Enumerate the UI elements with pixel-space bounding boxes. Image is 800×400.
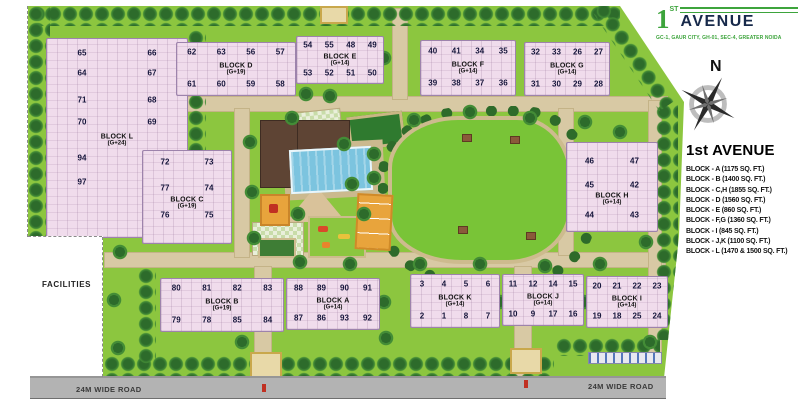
compass-star-icon bbox=[678, 74, 738, 134]
unit-number: 4 bbox=[442, 280, 446, 289]
unit-number: 82 bbox=[233, 284, 242, 293]
legend-item: BLOCK - D (1560 SQ. FT.) bbox=[686, 196, 798, 206]
block-label: BLOCK H(G+14) bbox=[595, 193, 628, 206]
unit-number: 16 bbox=[569, 310, 578, 319]
unit-number: 17 bbox=[549, 310, 558, 319]
unit-number: 8 bbox=[464, 311, 468, 320]
block-label-floors: (G+19) bbox=[219, 70, 252, 76]
unit-number: 27 bbox=[594, 48, 603, 57]
block-c: 727377747675BLOCK C(G+19) bbox=[142, 150, 232, 244]
block-k: 34562187BLOCK K(G+14) bbox=[410, 274, 500, 328]
unit-number: 69 bbox=[148, 118, 157, 127]
legend-title: 1st AVENUE bbox=[686, 142, 798, 159]
unit-number: 39 bbox=[428, 79, 437, 88]
unit-number: 47 bbox=[630, 156, 639, 165]
unit-number: 73 bbox=[205, 158, 214, 167]
boundary-dashed-line bbox=[28, 236, 102, 237]
block-label-name: BLOCK J bbox=[527, 294, 559, 301]
unit-number: 32 bbox=[531, 48, 540, 57]
unit-number: 78 bbox=[202, 315, 211, 324]
unit-number: 20 bbox=[593, 282, 602, 291]
unit-number: 72 bbox=[161, 158, 170, 167]
unit-number: 58 bbox=[276, 79, 285, 88]
unit-number: 34 bbox=[475, 46, 484, 55]
unit-number: 10 bbox=[509, 310, 518, 319]
unit-number: 36 bbox=[499, 79, 508, 88]
unit-number: 51 bbox=[346, 68, 355, 77]
entry-marker-icon bbox=[262, 384, 266, 392]
unit-number: 90 bbox=[340, 284, 349, 293]
block-label: BLOCK D(G+19) bbox=[219, 63, 252, 76]
unit-number: 38 bbox=[452, 79, 461, 88]
unit-number: 12 bbox=[529, 280, 538, 289]
unit-number: 66 bbox=[148, 48, 157, 57]
block-label-name: BLOCK A bbox=[316, 298, 349, 305]
block-label: BLOCK B(G+19) bbox=[205, 299, 238, 312]
unit-number: 35 bbox=[499, 46, 508, 55]
unit-number: 53 bbox=[303, 68, 312, 77]
unit-number: 29 bbox=[573, 79, 582, 88]
block-label-name: BLOCK I bbox=[612, 296, 642, 303]
block-label-floors: (G+14) bbox=[452, 69, 485, 75]
unit-number: 76 bbox=[161, 211, 170, 220]
compass: N bbox=[678, 58, 748, 140]
unit-number: 37 bbox=[475, 79, 484, 88]
unit-number: 50 bbox=[368, 68, 377, 77]
block-label-floors: (G+19) bbox=[205, 306, 238, 312]
unit-number: 84 bbox=[263, 315, 272, 324]
unit-number: 25 bbox=[633, 312, 642, 321]
block-j: 111214151091716BLOCK J(G+14) bbox=[502, 274, 584, 326]
legend-item: BLOCK - L (1470 & 1500 SQ. FT.) bbox=[686, 247, 798, 257]
unit-number: 43 bbox=[630, 211, 639, 220]
block-label-floors: (G+14) bbox=[316, 305, 349, 311]
unit-number: 19 bbox=[593, 312, 602, 321]
legend-item: BLOCK - F,G (1360 SQ. FT.) bbox=[686, 216, 798, 226]
unit-number: 33 bbox=[552, 48, 561, 57]
unit-number: 52 bbox=[325, 68, 334, 77]
unit-number: 64 bbox=[78, 68, 87, 77]
block-a: 8889909187869392BLOCK A(G+14) bbox=[286, 278, 380, 330]
unit-number: 5 bbox=[464, 280, 468, 289]
block-label: BLOCK J(G+14) bbox=[527, 294, 559, 307]
legend-item: BLOCK - J,K (1100 SQ. FT.) bbox=[686, 237, 798, 247]
block-label: BLOCK E(G+14) bbox=[324, 54, 357, 67]
logo-brand-text: AVENUE bbox=[680, 14, 798, 30]
unit-number: 44 bbox=[585, 211, 594, 220]
block-label: BLOCK K(G+14) bbox=[438, 295, 471, 308]
logo-superscript: ST bbox=[670, 6, 679, 13]
unit-number: 2 bbox=[420, 311, 424, 320]
unit-number: 89 bbox=[317, 284, 326, 293]
block-label: BLOCK I(G+14) bbox=[612, 296, 642, 309]
unit-number: 42 bbox=[630, 181, 639, 190]
logo-wordmark: AVENUE bbox=[680, 6, 798, 30]
legend-panel: 1st AVENUE BLOCK - A (1175 SQ. FT.)BLOCK… bbox=[686, 142, 798, 258]
unit-number: 40 bbox=[428, 46, 437, 55]
unit-number: 31 bbox=[531, 79, 540, 88]
block-label-floors: (G+24) bbox=[101, 140, 134, 146]
block-label: BLOCK A(G+14) bbox=[316, 298, 349, 311]
boundary-dashed-line bbox=[27, 6, 28, 237]
unit-number: 63 bbox=[217, 48, 226, 57]
block-label-floors: (G+14) bbox=[595, 200, 628, 206]
unit-number: 83 bbox=[263, 284, 272, 293]
unit-number: 65 bbox=[78, 48, 87, 57]
unit-number: 18 bbox=[613, 312, 622, 321]
road-label-right: 24M WIDE ROAD bbox=[588, 382, 654, 391]
unit-number: 86 bbox=[317, 314, 326, 323]
unit-number: 92 bbox=[363, 314, 372, 323]
legend-list: BLOCK - A (1175 SQ. FT.)BLOCK - B (1400 … bbox=[686, 165, 798, 258]
unit-number: 3 bbox=[420, 280, 424, 289]
unit-number: 68 bbox=[148, 96, 157, 105]
entry-marker-icon bbox=[524, 380, 528, 388]
unit-number: 49 bbox=[368, 41, 377, 50]
boundary-dashed-line bbox=[102, 237, 103, 377]
unit-number: 7 bbox=[486, 311, 490, 320]
block-label-floors: (G+14) bbox=[550, 70, 584, 76]
unit-number: 26 bbox=[573, 48, 582, 57]
unit-number: 87 bbox=[294, 314, 303, 323]
unit-number: 11 bbox=[509, 280, 517, 289]
unit-number: 45 bbox=[585, 181, 594, 190]
unit-number: 97 bbox=[78, 177, 87, 186]
unit-number: 88 bbox=[294, 284, 303, 293]
unit-number: 85 bbox=[233, 315, 242, 324]
unit-number: 59 bbox=[246, 79, 255, 88]
block-label-floors: (G+14) bbox=[438, 302, 471, 308]
unit-number: 81 bbox=[202, 284, 211, 293]
logo-subtitle: GC-1, GAUR CITY, GH-01, SEC-4, GREATER N… bbox=[656, 35, 798, 41]
unit-number: 22 bbox=[633, 282, 642, 291]
legend-item: BLOCK - A (1175 SQ. FT.) bbox=[686, 165, 798, 175]
facilities-label: FACILITIES bbox=[42, 280, 91, 289]
block-label-name: BLOCK B bbox=[205, 299, 238, 306]
unit-number: 15 bbox=[569, 280, 578, 289]
legend-item: BLOCK - C,H (1855 SQ. FT.) bbox=[686, 186, 798, 196]
road-label-left: 24M WIDE ROAD bbox=[76, 385, 142, 394]
unit-number: 71 bbox=[78, 96, 87, 105]
block-f: 4041343539383736BLOCK F(G+14) bbox=[420, 40, 516, 96]
block-d: 6263565761605958BLOCK D(G+19) bbox=[176, 42, 296, 96]
block-label-name: BLOCK D bbox=[219, 63, 252, 70]
unit-number: 57 bbox=[276, 48, 285, 57]
block-b: 8081828379788584BLOCK B(G+19) bbox=[160, 278, 284, 332]
unit-number: 67 bbox=[148, 68, 157, 77]
block-label-name: BLOCK G bbox=[550, 63, 584, 70]
unit-number: 46 bbox=[585, 156, 594, 165]
block-g: 3233262731302928BLOCK G(G+14) bbox=[524, 42, 610, 96]
block-label-name: BLOCK L bbox=[101, 133, 134, 140]
block-label: BLOCK L(G+24) bbox=[101, 133, 134, 146]
unit-number: 9 bbox=[531, 310, 535, 319]
unit-number: 1 bbox=[442, 311, 446, 320]
unit-number: 93 bbox=[340, 314, 349, 323]
unit-number: 41 bbox=[452, 46, 461, 55]
unit-number: 6 bbox=[486, 280, 490, 289]
unit-number: 91 bbox=[363, 284, 372, 293]
unit-number: 54 bbox=[303, 41, 312, 50]
unit-number: 94 bbox=[78, 153, 87, 162]
block-label: BLOCK C(G+19) bbox=[170, 196, 203, 209]
unit-number: 60 bbox=[217, 79, 226, 88]
block-label-name: BLOCK E bbox=[324, 54, 357, 61]
project-logo: 1ST AVENUE GC-1, GAUR CITY, GH-01, SEC-4… bbox=[656, 6, 798, 41]
legend-item: BLOCK - B (1400 SQ. FT.) bbox=[686, 175, 798, 185]
block-label-name: BLOCK K bbox=[438, 295, 471, 302]
unit-number: 74 bbox=[205, 183, 214, 192]
logo-one: 1 bbox=[656, 4, 670, 34]
logo-numeral: 1ST bbox=[656, 6, 678, 33]
unit-number: 61 bbox=[187, 79, 196, 88]
unit-number: 23 bbox=[653, 282, 662, 291]
unit-number: 56 bbox=[246, 48, 255, 57]
block-label-name: BLOCK F bbox=[452, 62, 485, 69]
legend-item: BLOCK - E (860 SQ. FT.) bbox=[686, 206, 798, 216]
legend-item: BLOCK - I (845 SQ. FT.) bbox=[686, 227, 798, 237]
unit-number: 79 bbox=[172, 315, 181, 324]
unit-number: 28 bbox=[594, 79, 603, 88]
unit-number: 62 bbox=[187, 48, 196, 57]
block-label-floors: (G+14) bbox=[324, 61, 357, 67]
block-h: 464745424443BLOCK H(G+14) bbox=[566, 142, 658, 232]
block-label-floors: (G+19) bbox=[170, 203, 203, 209]
block-label-floors: (G+14) bbox=[527, 301, 559, 307]
unit-number: 14 bbox=[549, 280, 558, 289]
block-label: BLOCK G(G+14) bbox=[550, 63, 584, 76]
block-e: 5455484953525150BLOCK E(G+14) bbox=[296, 36, 384, 84]
unit-number: 70 bbox=[78, 118, 87, 127]
unit-number: 75 bbox=[205, 211, 214, 220]
site-plan-page: 656664677168706994959796BLOCK L(G+24)626… bbox=[0, 0, 800, 400]
unit-number: 55 bbox=[325, 41, 334, 50]
unit-number: 30 bbox=[552, 79, 561, 88]
block-label-name: BLOCK H bbox=[595, 193, 628, 200]
block-label: BLOCK F(G+14) bbox=[452, 62, 485, 75]
block-label-name: BLOCK C bbox=[170, 196, 203, 203]
unit-number: 48 bbox=[346, 41, 355, 50]
unit-number: 77 bbox=[161, 183, 170, 192]
unit-number: 80 bbox=[172, 284, 181, 293]
block-label-floors: (G+14) bbox=[612, 303, 642, 309]
unit-number: 24 bbox=[653, 312, 662, 321]
block-i: 2021222319182524BLOCK I(G+14) bbox=[586, 276, 668, 328]
unit-number: 21 bbox=[613, 282, 622, 291]
